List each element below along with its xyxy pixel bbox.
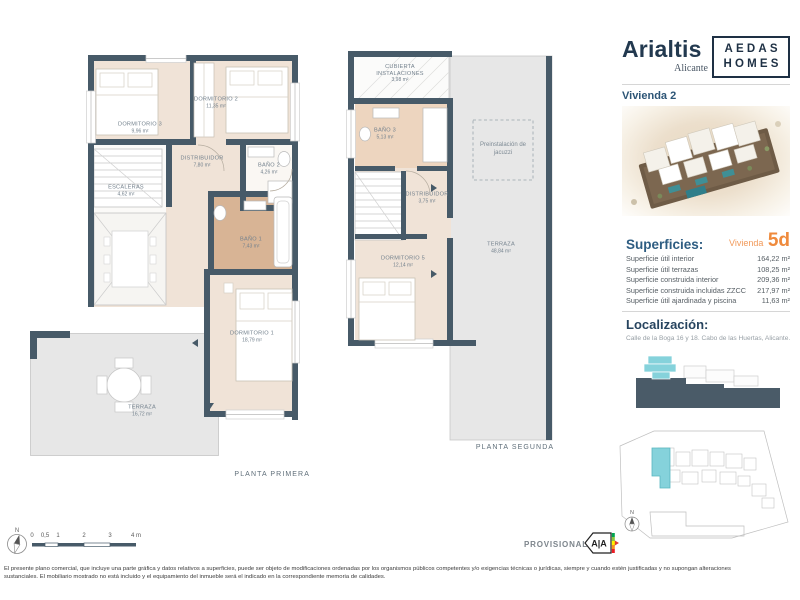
energy-certificate-icon: A|A	[578, 528, 618, 558]
site-compass-icon: N	[625, 510, 639, 531]
unit-outlines	[658, 448, 774, 508]
project-city: Alicante	[622, 63, 708, 74]
section-diagram	[628, 352, 788, 414]
logo-line-2: HOMES	[720, 57, 781, 72]
scale-segments	[32, 543, 136, 547]
superficie-value: 217,97 m²	[757, 286, 790, 295]
terrain-detail	[631, 199, 637, 205]
superficie-label: Superficie útil interior	[626, 254, 694, 263]
section-diagram-drawing	[628, 352, 788, 414]
scale-bar-drawing: 0 0,5 1 2 3 4 m	[26, 528, 146, 554]
planta-segunda-plan: CUBIERTA INSTALACIONES 3,98 m² BAÑO 3 5,…	[345, 48, 570, 460]
divider	[622, 311, 790, 312]
svg-text:3: 3	[108, 533, 112, 539]
buildings-group	[634, 112, 780, 209]
superficie-row: Superficie útil ajardinada y piscina 11,…	[626, 296, 790, 305]
energy-certificate-drawing: A|A	[578, 528, 618, 558]
svg-text:1: 1	[56, 533, 60, 539]
aedas-homes-logo: AEDAS HOMES	[712, 36, 790, 78]
superficie-value: 108,25 m²	[757, 265, 790, 274]
superficie-label: Superficie construida incluidas ZZCC	[626, 286, 746, 295]
terrain-detail	[775, 121, 781, 127]
svg-text:N: N	[630, 510, 634, 516]
planta-primera-plan: DORMITORIO 3 9,96 m² DORMITORIO 2 11,35 …	[30, 55, 300, 485]
highlighted-unit-site	[652, 448, 670, 488]
site-plan-drawing: N	[612, 424, 794, 562]
superficie-label: Superficie útil ajardinada y piscina	[626, 296, 736, 305]
superficie-value: 164,22 m²	[757, 254, 790, 263]
highlighted-unit-section	[644, 356, 676, 379]
energy-scale-strip	[612, 533, 615, 553]
bed-dormitorio-5	[359, 278, 415, 340]
disclaimer-text: El presente plano comercial, que incluye…	[4, 566, 766, 582]
stairs	[355, 172, 403, 240]
planta-segunda-drawing	[345, 48, 570, 460]
superficie-row: Superficie construida incluidas ZZCC 217…	[626, 286, 790, 295]
plan-caption-primera: PLANTA PRIMERA	[190, 471, 310, 478]
superficies-title: Superficies:	[626, 237, 703, 252]
superficie-row: Superficie útil terrazas 108,25 m²	[626, 265, 790, 274]
superficies-table: Superficie útil interior 164,22 m² Super…	[626, 254, 790, 305]
superficie-value: 209,36 m²	[757, 275, 790, 284]
logo-line-1: AEDAS	[721, 42, 780, 57]
project-name: Arialtis	[622, 36, 710, 63]
unit-prefix: Vivienda	[729, 238, 763, 248]
superficies-header: Superficies: Vivienda 5d	[626, 230, 790, 252]
plan-caption-segunda: PLANTA SEGUNDA	[460, 444, 570, 451]
bed-dormitorio-3	[96, 69, 158, 135]
svg-text:N: N	[15, 528, 19, 534]
superficies-unit: Vivienda 5d	[729, 230, 790, 252]
svg-text:2: 2	[82, 533, 86, 539]
site-boundary	[620, 431, 788, 538]
unit-code: 5d	[768, 230, 790, 251]
svg-text:4 m: 4 m	[131, 533, 141, 539]
superficie-value: 11,63 m²	[762, 296, 790, 305]
superficie-label: Superficie construida interior	[626, 275, 718, 284]
stairs	[94, 149, 162, 207]
building-mass	[636, 378, 780, 408]
divider	[622, 84, 790, 85]
scale-bar: 0 0,5 1 2 3 4 m	[26, 528, 146, 554]
localizacion-address: Calle de la Boga 16 y 18. Cabo de las Hu…	[626, 335, 790, 342]
svg-text:0: 0	[30, 533, 34, 539]
scale-labels: 0 0,5 1 2 3 4 m	[30, 533, 141, 539]
double-height-void	[94, 213, 166, 305]
site-plan: N	[612, 424, 794, 562]
superficie-row: Superficie útil interior 164,22 m²	[626, 254, 790, 263]
bed-dormitorio-2	[226, 67, 288, 133]
superficie-label: Superficie útil terrazas	[626, 265, 698, 274]
neighbor-outlines	[684, 366, 758, 386]
planta-primera-drawing	[30, 55, 300, 485]
brochure-page: DORMITORIO 3 9,96 m² DORMITORIO 2 11,35 …	[0, 0, 800, 600]
localizacion-title: Localización:	[626, 317, 708, 332]
unit-title: Vivienda 2	[622, 90, 676, 102]
svg-text:0,5: 0,5	[41, 533, 50, 539]
svg-text:A|A: A|A	[591, 539, 607, 549]
aerial-render-drawing	[622, 106, 790, 216]
aerial-render-image	[622, 106, 790, 216]
superficie-row: Superficie construida interior 209,36 m²	[626, 275, 790, 284]
